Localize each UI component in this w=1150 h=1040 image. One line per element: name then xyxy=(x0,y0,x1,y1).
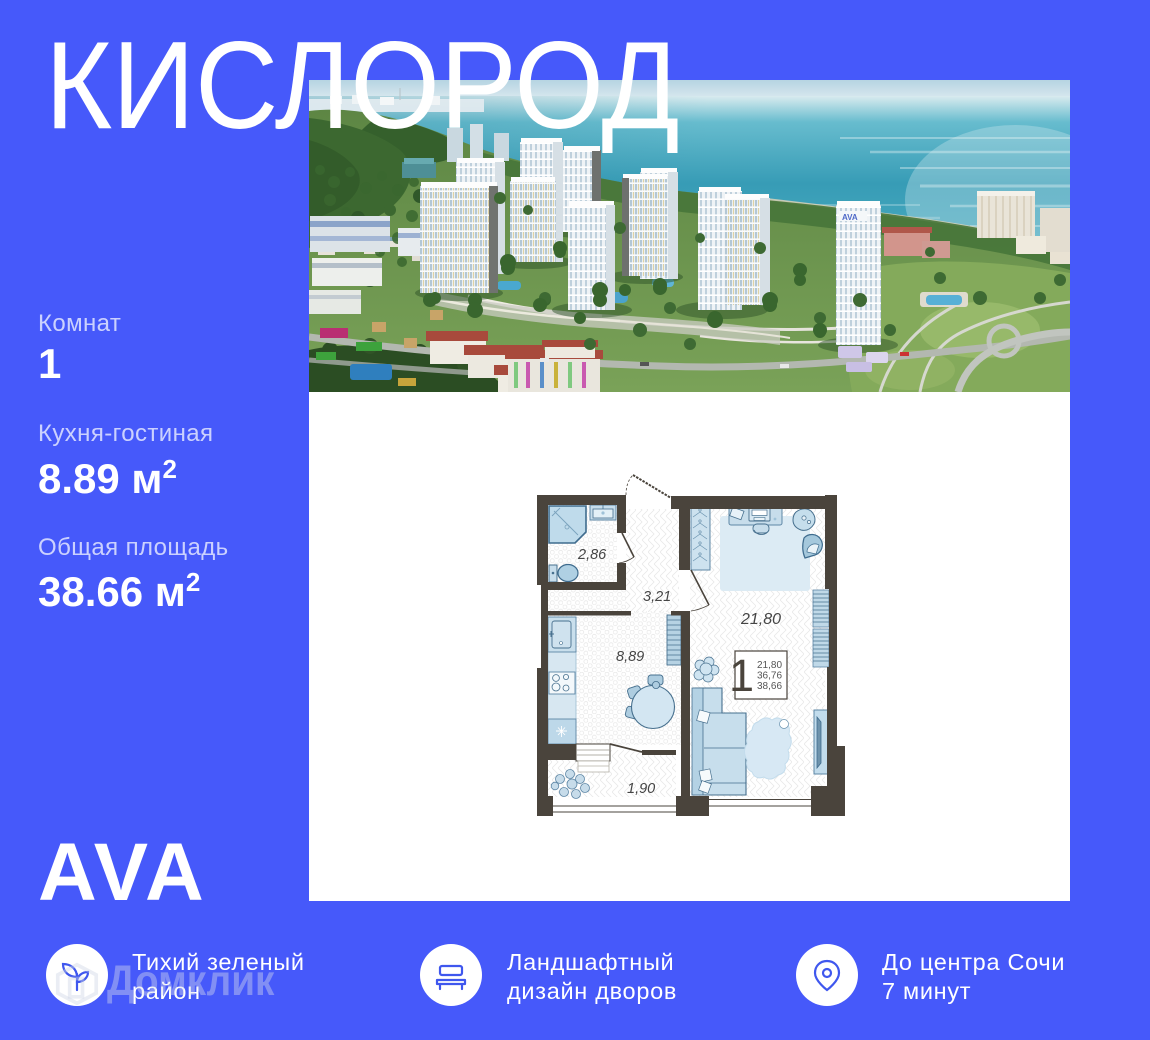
svg-text:2,86: 2,86 xyxy=(577,547,607,563)
svg-text:AVA: AVA xyxy=(842,213,858,222)
svg-text:1: 1 xyxy=(729,650,754,701)
svg-text:21,80: 21,80 xyxy=(757,660,782,671)
svg-text:8,89: 8,89 xyxy=(616,649,644,665)
svg-text:1,90: 1,90 xyxy=(627,781,655,797)
svg-text:21,80: 21,80 xyxy=(740,611,781,628)
svg-text:38,66: 38,66 xyxy=(757,681,782,692)
svg-text:3,21: 3,21 xyxy=(643,589,671,605)
svg-text:36,76: 36,76 xyxy=(757,671,782,682)
